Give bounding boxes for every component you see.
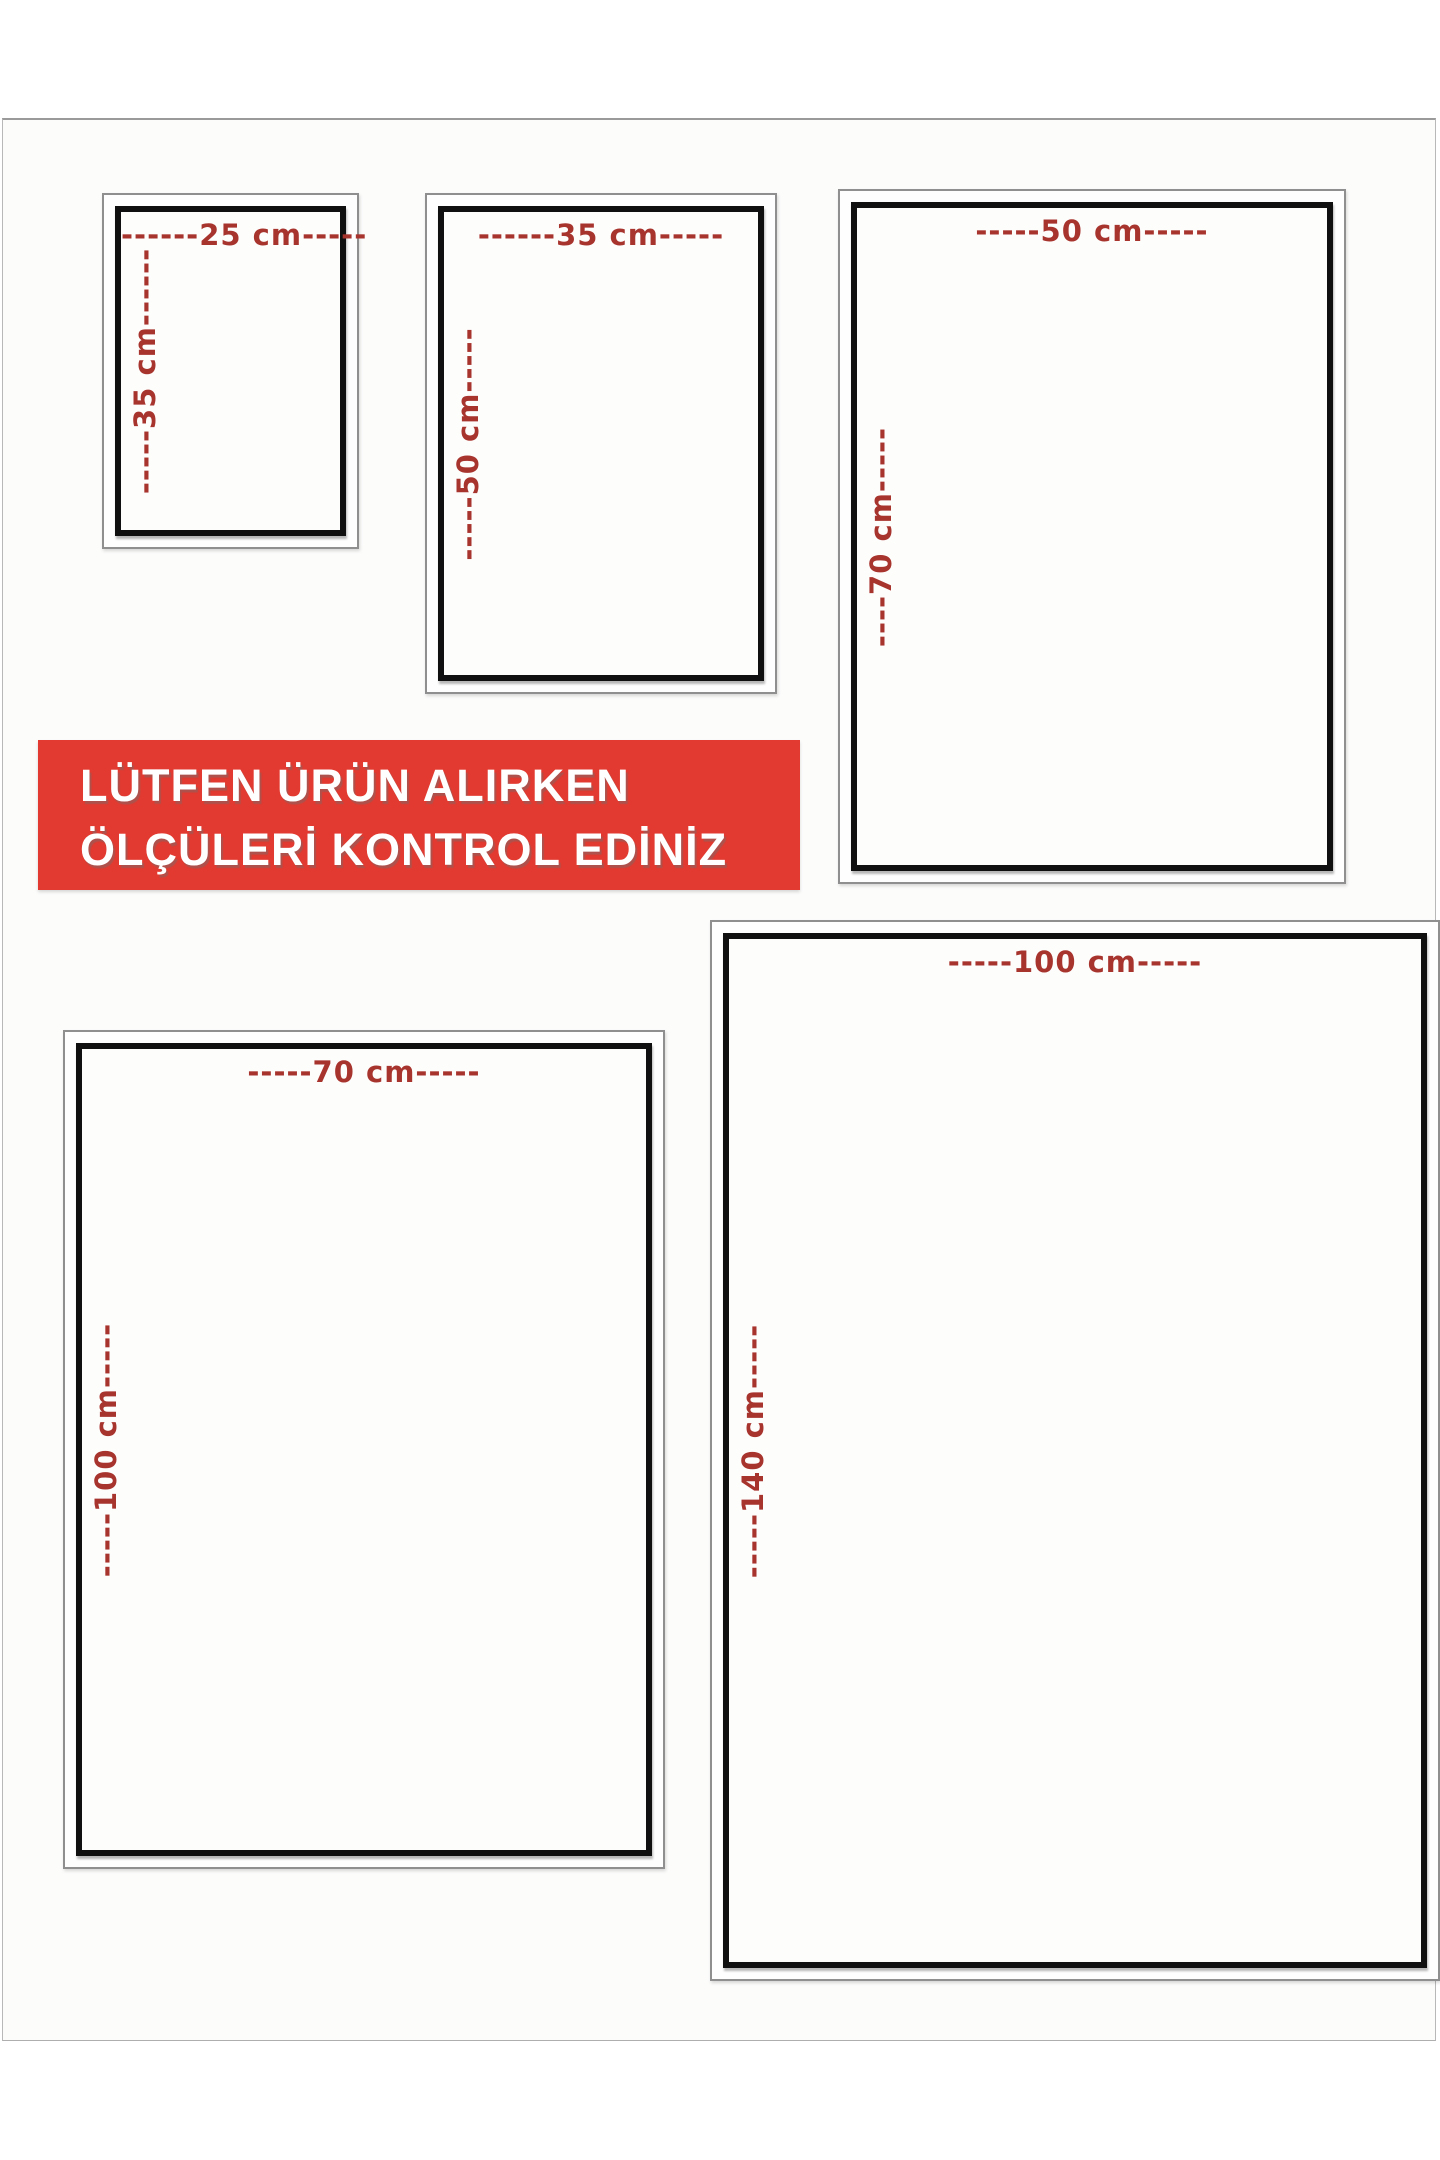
size-box-70x100: -----70 cm----- -----100 cm----- (63, 1030, 665, 1869)
banner-line-2: ÖLÇÜLERİ KONTROL EDİNİZ (80, 818, 800, 882)
height-label: -----50 cm----- (451, 327, 485, 560)
size-frame: ------35 cm----- -----50 cm----- (438, 206, 764, 681)
size-frame: ------25 cm----- -----35 cm------ (115, 206, 346, 536)
notice-banner: LÜTFEN ÜRÜN ALIRKEN ÖLÇÜLERİ KONTROL EDİ… (38, 740, 800, 890)
size-guide-image: ------25 cm----- -----35 cm------ ------… (0, 0, 1440, 2160)
height-label: -----35 cm------ (128, 248, 162, 494)
width-label: -----50 cm----- (857, 214, 1327, 248)
size-frame: -----70 cm----- -----100 cm----- (76, 1043, 652, 1856)
width-label: -----70 cm----- (82, 1055, 646, 1089)
height-label: -----140 cm----- (736, 1323, 770, 1577)
notice-banner-text: LÜTFEN ÜRÜN ALIRKEN ÖLÇÜLERİ KONTROL EDİ… (38, 740, 800, 882)
size-box-50x70: -----50 cm----- ----70 cm----- (838, 189, 1346, 884)
width-label: ------35 cm----- (444, 218, 758, 252)
size-box-35x50: ------35 cm----- -----50 cm----- (425, 193, 777, 694)
size-box-100x140: -----100 cm----- -----140 cm----- (710, 920, 1440, 1981)
height-label: ----70 cm----- (864, 426, 898, 646)
banner-line-1: LÜTFEN ÜRÜN ALIRKEN (80, 754, 800, 818)
size-frame: -----100 cm----- -----140 cm----- (723, 933, 1427, 1968)
height-label: -----100 cm----- (89, 1322, 123, 1576)
width-label: -----100 cm----- (729, 945, 1421, 979)
size-frame: -----50 cm----- ----70 cm----- (851, 202, 1333, 871)
size-box-25x35: ------25 cm----- -----35 cm------ (102, 193, 359, 549)
